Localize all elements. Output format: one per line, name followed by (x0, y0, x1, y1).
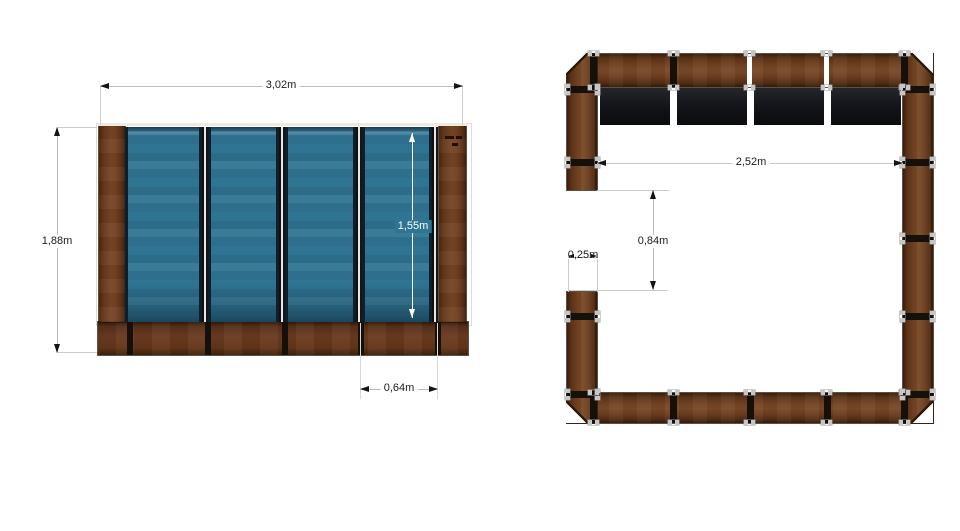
dim-arrow-left-icon (597, 160, 606, 166)
connector-clip (668, 85, 679, 90)
connector-clip (565, 84, 570, 95)
dimension-wall-thickness: 0,25m (568, 249, 599, 262)
plan-glass-panel-4 (831, 88, 901, 125)
corner-chamfer (566, 53, 588, 75)
connector-clip (821, 420, 832, 425)
connector-clip (930, 157, 935, 168)
wall-joint (824, 393, 831, 423)
connector-clip (668, 420, 679, 425)
extension-line (568, 259, 569, 292)
connector-clip (900, 233, 905, 244)
connector-clip (930, 84, 935, 95)
connector-clip (899, 420, 910, 425)
connector-clip (668, 390, 679, 395)
connector-clip (821, 51, 832, 56)
plan-glass-panel-1 (600, 88, 670, 125)
wall-gap (747, 54, 752, 87)
dim-arrow-up-icon (650, 190, 656, 199)
extension-line (568, 290, 668, 291)
connector-clip (900, 84, 905, 95)
connector-clip (821, 85, 832, 90)
connector-clip (565, 311, 570, 322)
corner-chamfer (911, 401, 933, 423)
wall-joint (903, 159, 933, 166)
connector-clip (899, 51, 910, 56)
connector-clip (930, 311, 935, 322)
connector-clip (900, 311, 905, 322)
wall-joint (903, 235, 933, 242)
corner-chamfer (911, 53, 933, 75)
dim-arrow-down-icon (650, 281, 656, 290)
connector-clip (930, 389, 935, 400)
plan-glass-panel-2 (677, 88, 747, 125)
extension-line (597, 190, 669, 191)
corner-chamfer (566, 401, 588, 423)
dimension-inner-width: 2,52m (733, 156, 770, 169)
connector-clip (595, 389, 600, 400)
connector-clip (930, 233, 935, 244)
connector-clip (668, 51, 679, 56)
connector-clip (744, 390, 755, 395)
wall-joint (567, 159, 597, 166)
plan-glass-panel-3 (754, 88, 824, 125)
connector-clip (588, 420, 599, 425)
top-plan-view: 2,52m 0,84m 0,25m (0, 0, 960, 531)
connector-clip (744, 85, 755, 90)
connector-clip (821, 390, 832, 395)
extension-line (597, 259, 598, 292)
connector-clip (595, 84, 600, 95)
wall-gap (824, 54, 829, 87)
wall-joint (670, 393, 677, 423)
dimension-opening-depth: 0,84m (635, 235, 672, 248)
wall-joint (901, 54, 908, 87)
wall-joint (590, 54, 597, 87)
connector-clip (744, 420, 755, 425)
wall-joint (903, 313, 933, 320)
wall-joint (670, 54, 677, 87)
dim-arrow-right-icon (894, 160, 903, 166)
connector-clip (900, 389, 905, 400)
connector-clip (595, 311, 600, 322)
connector-clip (744, 51, 755, 56)
wall-joint (567, 313, 597, 320)
connector-clip (565, 389, 570, 400)
connector-clip (588, 51, 599, 56)
wall-joint (747, 393, 754, 423)
connector-clip (565, 157, 570, 168)
